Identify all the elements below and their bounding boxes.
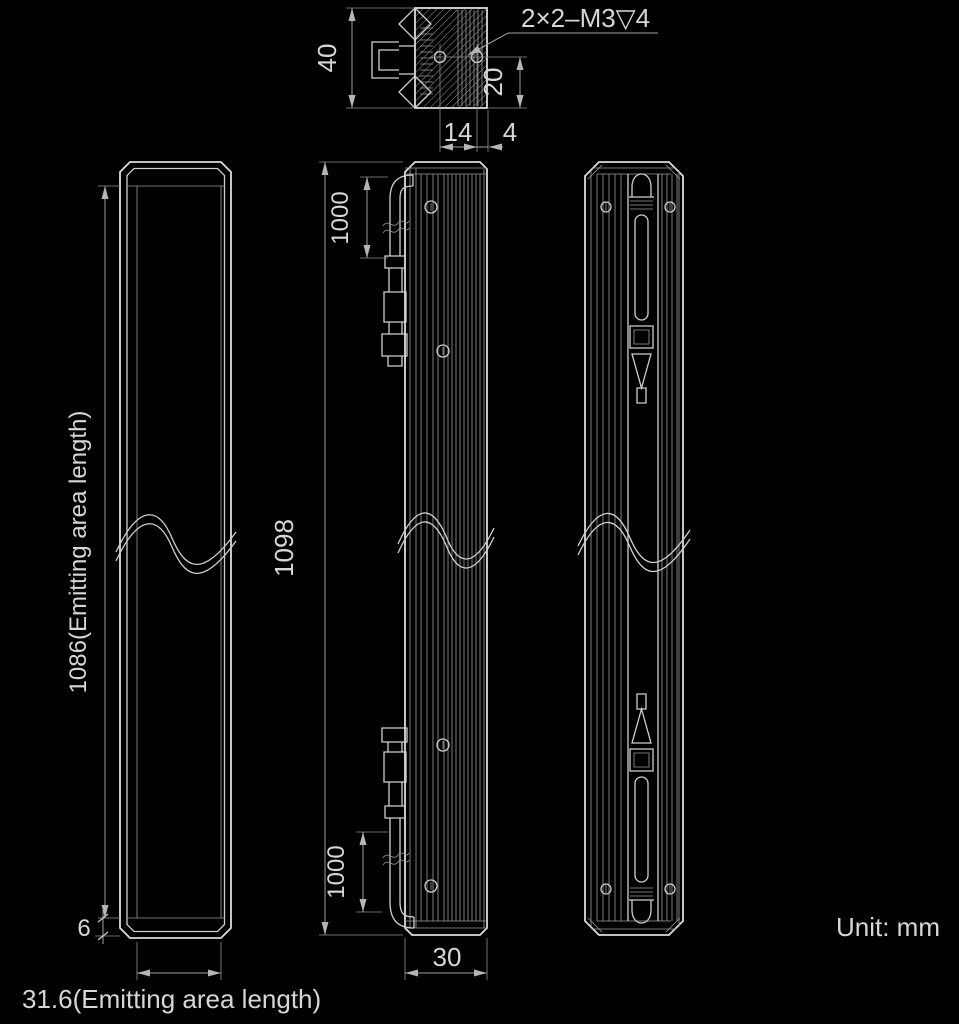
extension-lines [360, 177, 388, 258]
side-view: 1098 1000 1000 30 [269, 162, 494, 980]
dim-label-1000-top: 1000 [327, 191, 354, 244]
dim-1000-bottom: 1000 [323, 832, 388, 912]
front-inner-border [127, 169, 225, 932]
mounting-slot-bottom [635, 777, 648, 882]
dim-label-31-6: 31.6(Emitting area length) [22, 984, 321, 1014]
leader-line [468, 33, 658, 55]
side-horizontals [405, 168, 487, 928]
cable-lines [390, 818, 400, 902]
dim-label-20: 20 [478, 68, 508, 97]
thread-callout-label: 2×2–M3▽4 [521, 3, 650, 33]
dim-30: 30 [405, 938, 487, 980]
cable-lines [390, 199, 400, 256]
dim-1086: 1086(Emitting area length) [65, 186, 120, 918]
slider-block-bottom [630, 749, 653, 771]
cable-gland-top [629, 174, 654, 197]
thread-callout: 2×2–M3▽4 [468, 3, 658, 55]
dim-1000-top: 1000 [327, 177, 388, 258]
front-view: 1086(Emitting area length) 6 31.6(Emitti… [22, 162, 321, 1014]
channel-edges [628, 174, 658, 921]
connector-top [382, 256, 407, 366]
dim-31-6: 31.6(Emitting area length) [22, 942, 321, 1014]
extension-lines [137, 942, 221, 980]
break-line [578, 513, 690, 571]
channel-detail-top [629, 174, 654, 403]
slider-block-top [630, 326, 653, 348]
dim-label-1098: 1098 [269, 519, 299, 577]
dim-label-14: 14 [444, 117, 473, 147]
back-outline [585, 162, 683, 935]
arrow-feature-down [632, 354, 651, 403]
channel-detail-bottom [629, 694, 654, 923]
dimension-drawing: 40 20 14 4 2×2–M3▽4 1086(E [0, 0, 959, 1024]
back-horizontals [592, 168, 676, 929]
side-outline [405, 162, 487, 935]
unit-note: Unit: mm [836, 912, 940, 942]
side-fin-lines [444, 169, 484, 928]
break-line [116, 515, 236, 574]
dim-label-30: 30 [433, 942, 462, 972]
side-body-lines [410, 168, 438, 928]
slider-block-inner [634, 753, 649, 767]
cable-elbow-top [390, 175, 413, 199]
arrow-feature-up [632, 694, 651, 743]
dim-40: 40 [312, 8, 413, 108]
dim-6: 6 [77, 908, 120, 944]
slider-block-inner [634, 330, 649, 344]
dim-label-4: 4 [503, 117, 517, 147]
dim-label-40: 40 [312, 44, 342, 73]
dim-4: 4 [477, 117, 517, 147]
dim-1098: 1098 [269, 162, 403, 935]
cable-bottom [382, 728, 414, 928]
back-view [578, 162, 690, 935]
gland-stack-lines [630, 888, 653, 896]
cable-top [382, 175, 413, 366]
gland-stack-lines [630, 201, 653, 209]
cable-gland-bottom [629, 900, 654, 923]
dim-label-1086: 1086(Emitting area length) [65, 411, 92, 694]
dim-label-6: 6 [77, 915, 90, 942]
dim-label-1000-bottom: 1000 [323, 845, 350, 898]
top-section-view: 40 20 14 4 2×2–M3▽4 [312, 3, 658, 152]
engineering-drawing-canvas: 40 20 14 4 2×2–M3▽4 1086(E [0, 0, 959, 1024]
connector-profile [372, 42, 415, 78]
connector-bottom [382, 728, 407, 818]
screw-slits [606, 203, 670, 893]
corner-chamfer-lines [588, 165, 680, 932]
extension-lines [356, 832, 388, 912]
emitting-area-lines [127, 186, 225, 918]
mounting-slot-top [635, 215, 648, 320]
